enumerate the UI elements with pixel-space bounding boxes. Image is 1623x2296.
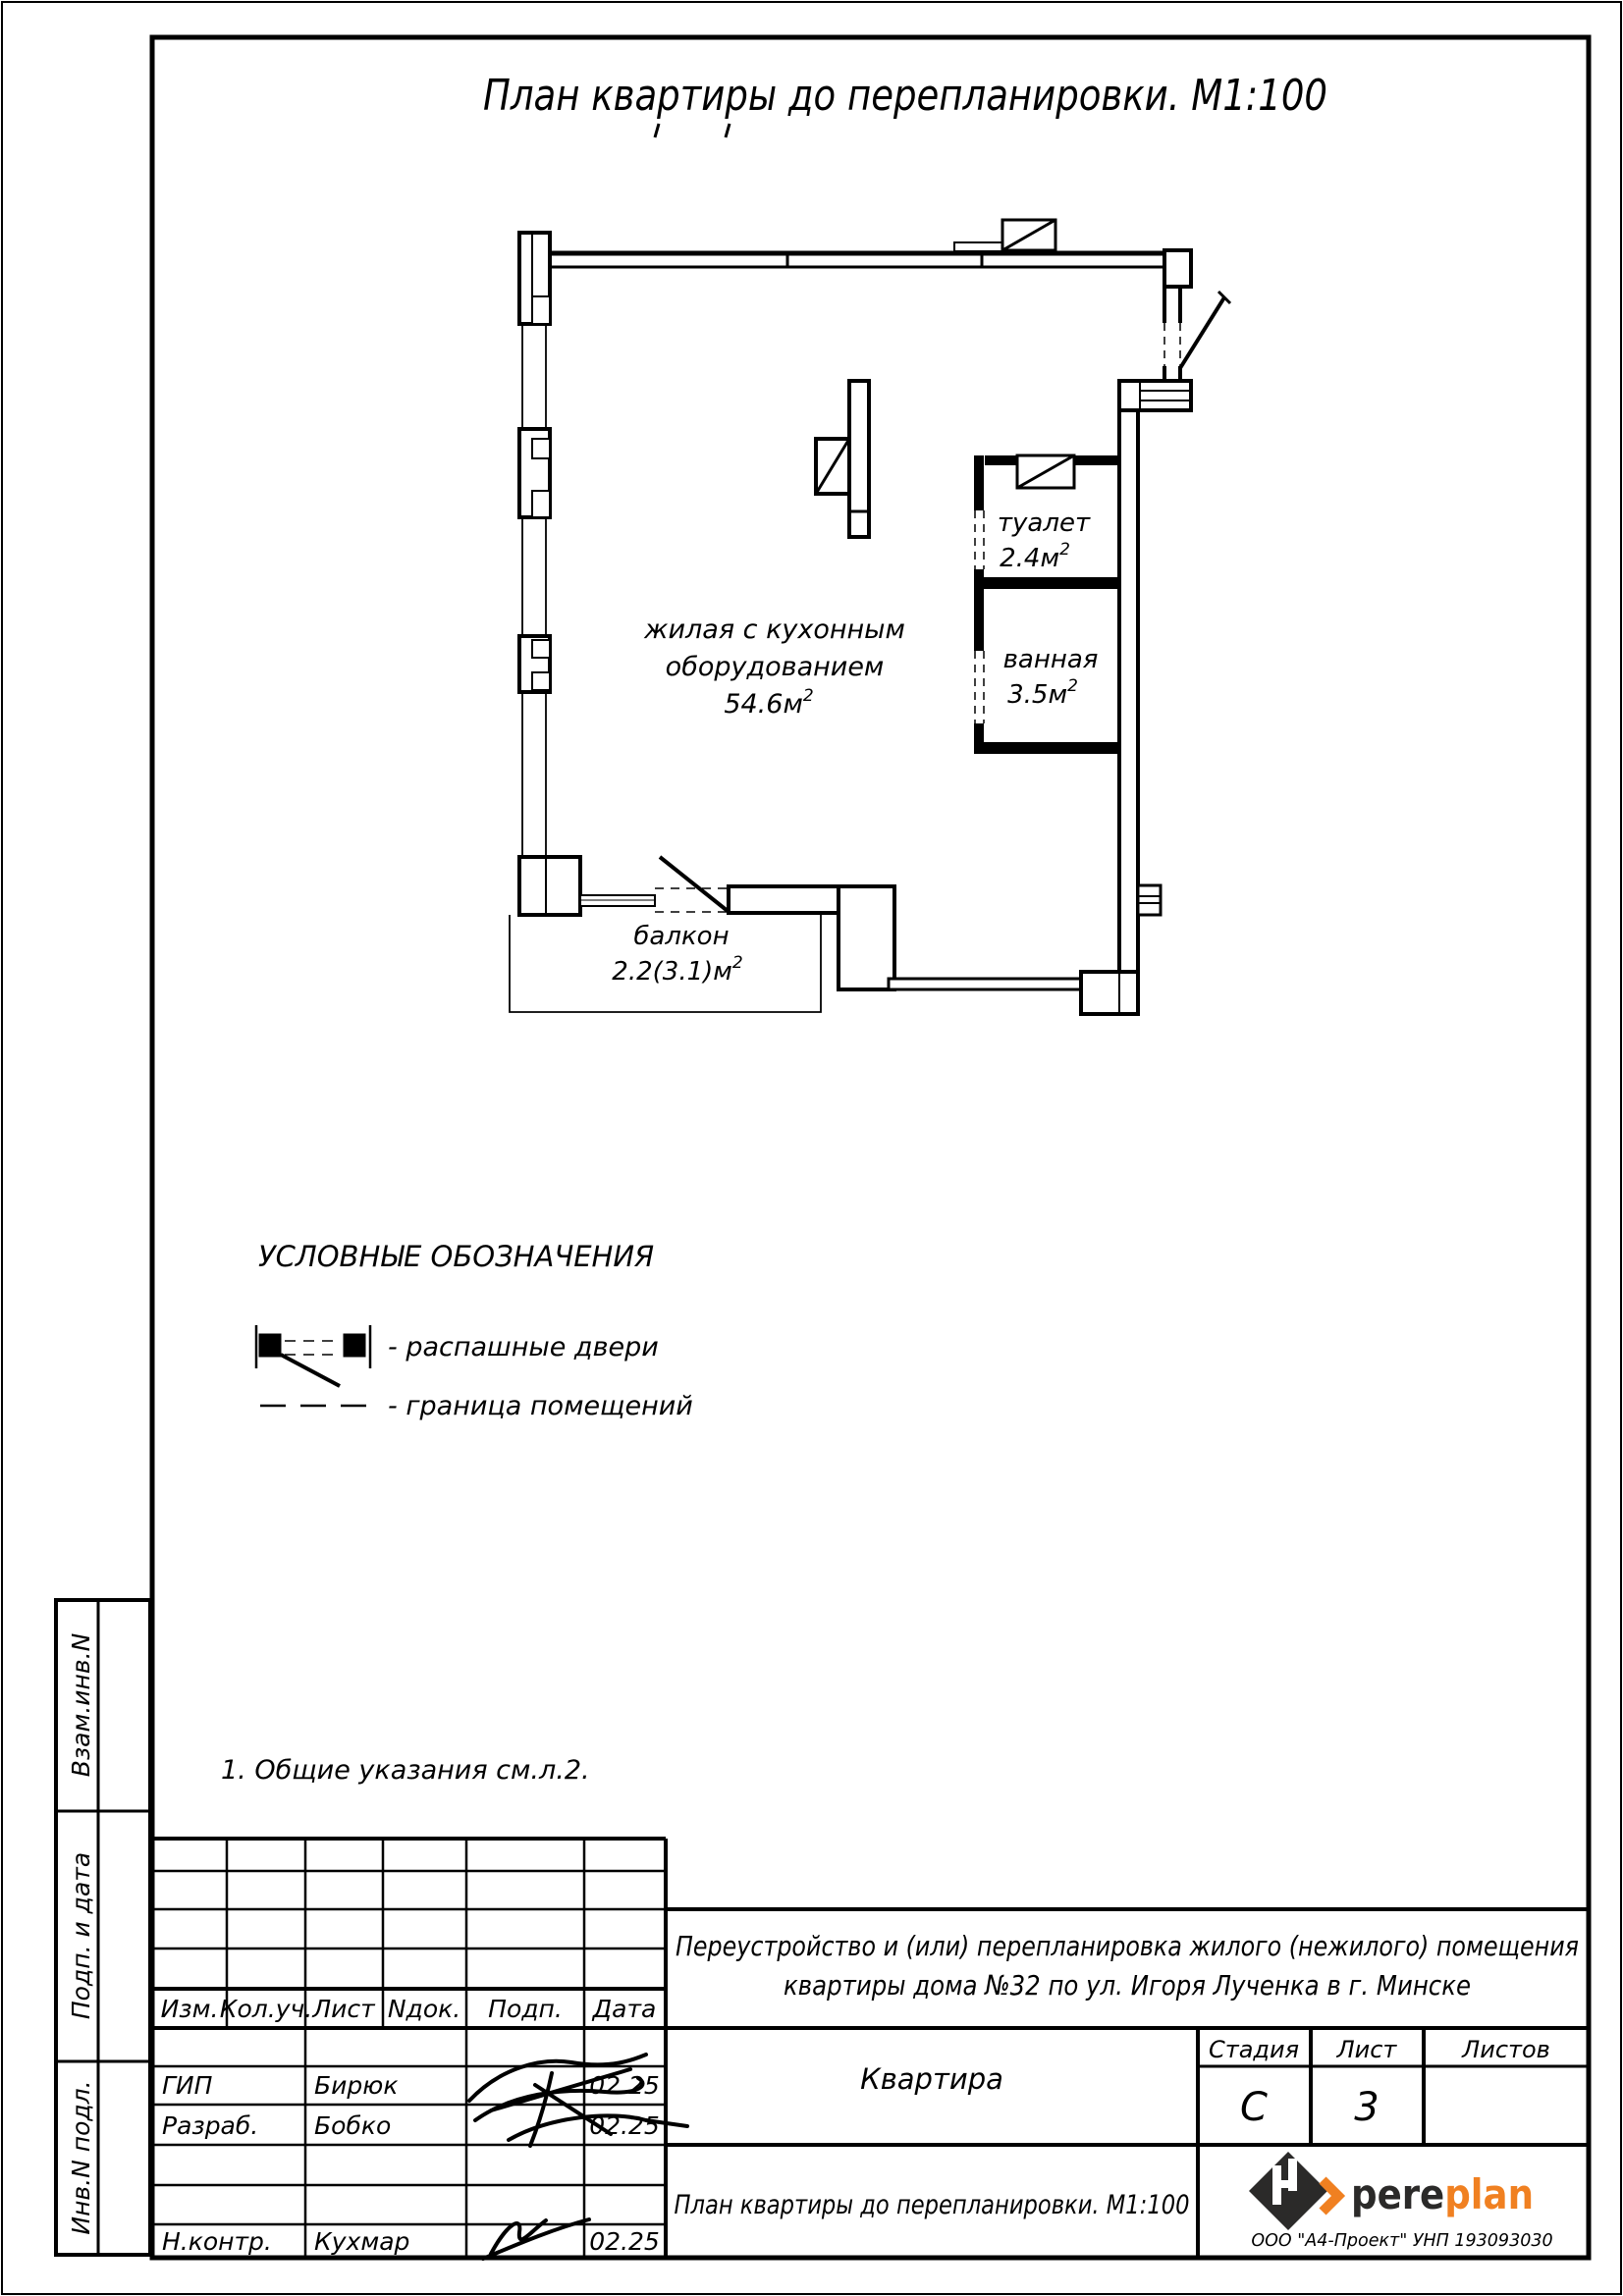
label-bath-area: 3.5м2 [1007, 676, 1078, 710]
pier-midleft-1 [519, 429, 550, 517]
sidebar-label-vzam: Взам.инв.N [67, 1632, 95, 1777]
sheet-title: План квартиры до перепланировки. М1:100 [483, 71, 1327, 121]
doc-title: План квартиры до перепланировки. М1:100 [675, 2190, 1190, 2220]
row-nkontr-name: Кухмар [314, 2227, 409, 2256]
legend-door-symbol [256, 1325, 370, 1386]
sheet-label: Лист [1336, 2036, 1398, 2063]
label-living-line1: жилая с кухонным [643, 614, 905, 645]
legend-heading: УСЛОВНЫЕ ОБОЗНАЧЕНИЯ [258, 1240, 654, 1273]
label-toilet-area: 2.4м2 [1000, 540, 1070, 573]
pier-topleft [519, 233, 550, 324]
pereplan-logo: pereplan ООО "А4-Проект" УНП 193093030 [1249, 2152, 1553, 2251]
sidebar-label-inv: Инв.N подл. [67, 2080, 95, 2234]
logo-wordmark: pereplan [1351, 2170, 1534, 2218]
window-lines-left [522, 324, 546, 857]
col-izm: Изм. [161, 1995, 219, 2023]
vent-box-top [954, 220, 1055, 251]
entry-landing-block [1119, 381, 1191, 410]
toilet-boundary-dashes [975, 510, 984, 569]
object-name: Квартира [860, 2062, 1003, 2096]
sheet-value: 3 [1354, 2085, 1379, 2130]
project-line1: Переустройство и (или) перепланировка жи… [676, 1930, 1579, 1962]
entry-door-leaf [1180, 297, 1224, 368]
wall-left [519, 233, 580, 915]
bath-boundary-dashes [975, 651, 984, 723]
logo-chevron [1323, 2180, 1338, 2212]
row-razrab-name: Бобко [314, 2111, 391, 2140]
wall-corner-bottomright [1081, 972, 1138, 1014]
pier-balcony-jamb [519, 857, 580, 915]
general-note: 1. Общие указания см.л.2. [221, 1755, 590, 1786]
row-gip-name: Бирюк [314, 2071, 398, 2100]
drawing-frame [152, 37, 1589, 2258]
col-koluch: Кол.уч. [220, 1995, 312, 2023]
label-living-area: 54.6м2 [724, 686, 813, 720]
row-nkontr-role: Н.контр. [162, 2227, 272, 2256]
row-razrab-role: Разраб. [162, 2111, 258, 2140]
col-list: Лист [311, 1995, 376, 2023]
row-nkontr-date: 02.25 [589, 2227, 660, 2256]
wall-top [550, 253, 1191, 267]
label-living-line2: оборудованием [666, 652, 885, 682]
wall-right-step [1138, 885, 1161, 915]
entry-door [1164, 287, 1230, 382]
titleblock-header-row: Изм. Кол.уч. Лист Nдок. Подп. Дата [161, 1995, 657, 2023]
entry-door-opening-dashes [1164, 323, 1180, 366]
legend-item-doors: - распашные двери [388, 1332, 659, 1362]
balcony-door-opening-dashes [655, 888, 729, 912]
label-toilet: туалет [998, 508, 1091, 538]
plan-tick-marks [655, 124, 730, 137]
floor-plan [510, 124, 1230, 1014]
kitchen-vent-stack [816, 381, 869, 537]
label-bath: ванная [1003, 645, 1099, 674]
label-balcony: балкон [633, 922, 729, 951]
sidebar-label-podp: Подп. и дата [67, 1852, 95, 2019]
drawing-sheet: План квартиры до перепланировки. М1:100 [0, 0, 1623, 2296]
label-balcony-area: 2.2(3.1)м2 [612, 953, 742, 987]
col-data: Дата [592, 1995, 657, 2023]
balcony-door-leaf [660, 857, 728, 911]
project-line2: квартиры дома №32 по ул. Игоря Лученка в… [784, 1969, 1471, 2002]
pier-midleft-2 [519, 636, 550, 692]
col-podp: Подп. [488, 1995, 563, 2023]
row-gip-role: ГИП [162, 2071, 213, 2100]
row-gip-date: 02.25 [589, 2071, 660, 2100]
stage-value: С [1240, 2085, 1268, 2130]
legend-item-boundary: - граница помещений [388, 1391, 693, 1421]
col-ndok: Nдок. [388, 1995, 460, 2023]
legend: УСЛОВНЫЕ ОБОЗНАЧЕНИЯ - распашные двери -… [256, 1240, 693, 1421]
stage-label: Стадия [1209, 2036, 1299, 2063]
wall-corner-topright [1164, 250, 1191, 287]
sheets-label: Листов [1461, 2036, 1550, 2063]
logo-subtext: ООО "А4-Проект" УНП 193093030 [1251, 2231, 1552, 2251]
wall-right [1119, 410, 1138, 972]
